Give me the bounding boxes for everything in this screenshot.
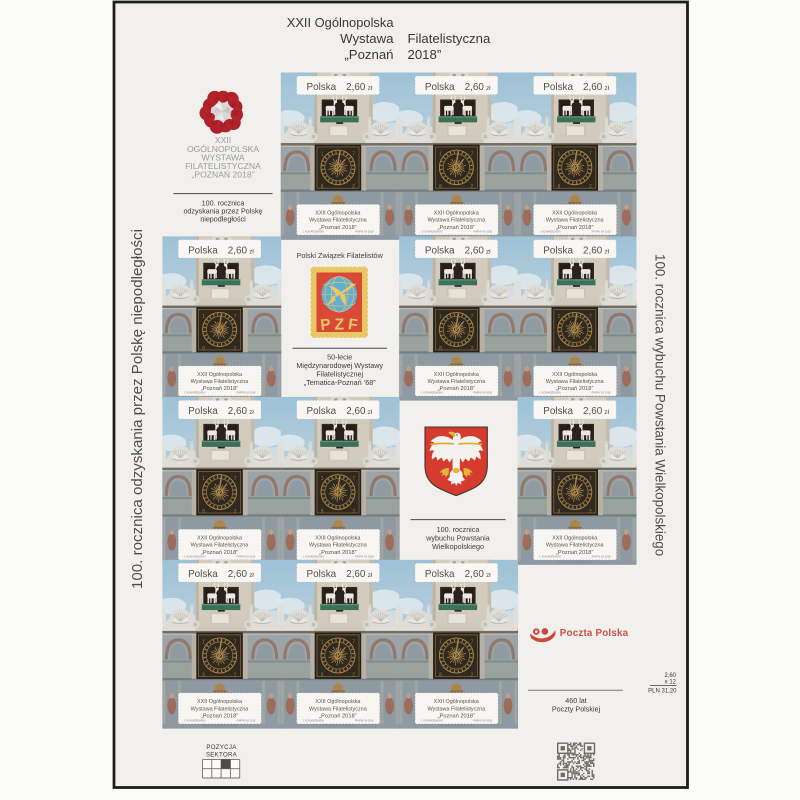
svg-text:Poczty Polskiej: Poczty Polskiej [552, 705, 601, 714]
svg-text:POZYCJA: POZYCJA [206, 744, 237, 751]
svg-text:Wystawa: Wystawa [340, 31, 394, 46]
svg-text:SEKTORA: SEKTORA [206, 752, 238, 759]
svg-text:PLN 31,20: PLN 31,20 [648, 689, 677, 695]
svg-text:2018”: 2018” [408, 47, 442, 62]
svg-text:Filatelistyczna: Filatelistyczna [408, 31, 491, 46]
svg-text:100. rocznica odzyskania przez: 100. rocznica odzyskania przez Polskę ni… [129, 229, 146, 589]
svg-text:„Poznań: „Poznań [344, 47, 393, 62]
svg-text:100. rocznica wybuchu Powstani: 100. rocznica wybuchu Powstania Wielkopo… [653, 254, 668, 556]
svg-text:x 12: x 12 [665, 680, 677, 686]
svg-text:niepodległości: niepodległości [200, 215, 246, 224]
svg-text:Poczta Polska: Poczta Polska [560, 628, 629, 639]
svg-text:Polski Związek Filatelistów: Polski Związek Filatelistów [297, 251, 384, 260]
svg-text:XXII Ogólnopolska: XXII Ogólnopolska [287, 15, 395, 30]
svg-text:2,60: 2,60 [664, 673, 676, 679]
svg-text:P: P [319, 316, 331, 334]
svg-text:Z: Z [335, 317, 345, 334]
svg-text:„POZNAŃ 2018”: „POZNAŃ 2018” [191, 170, 254, 180]
svg-text:„Tematica-Poznań ’68”: „Tematica-Poznań ’68” [304, 378, 377, 387]
svg-text:Wielkopolskiego: Wielkopolskiego [432, 542, 484, 551]
